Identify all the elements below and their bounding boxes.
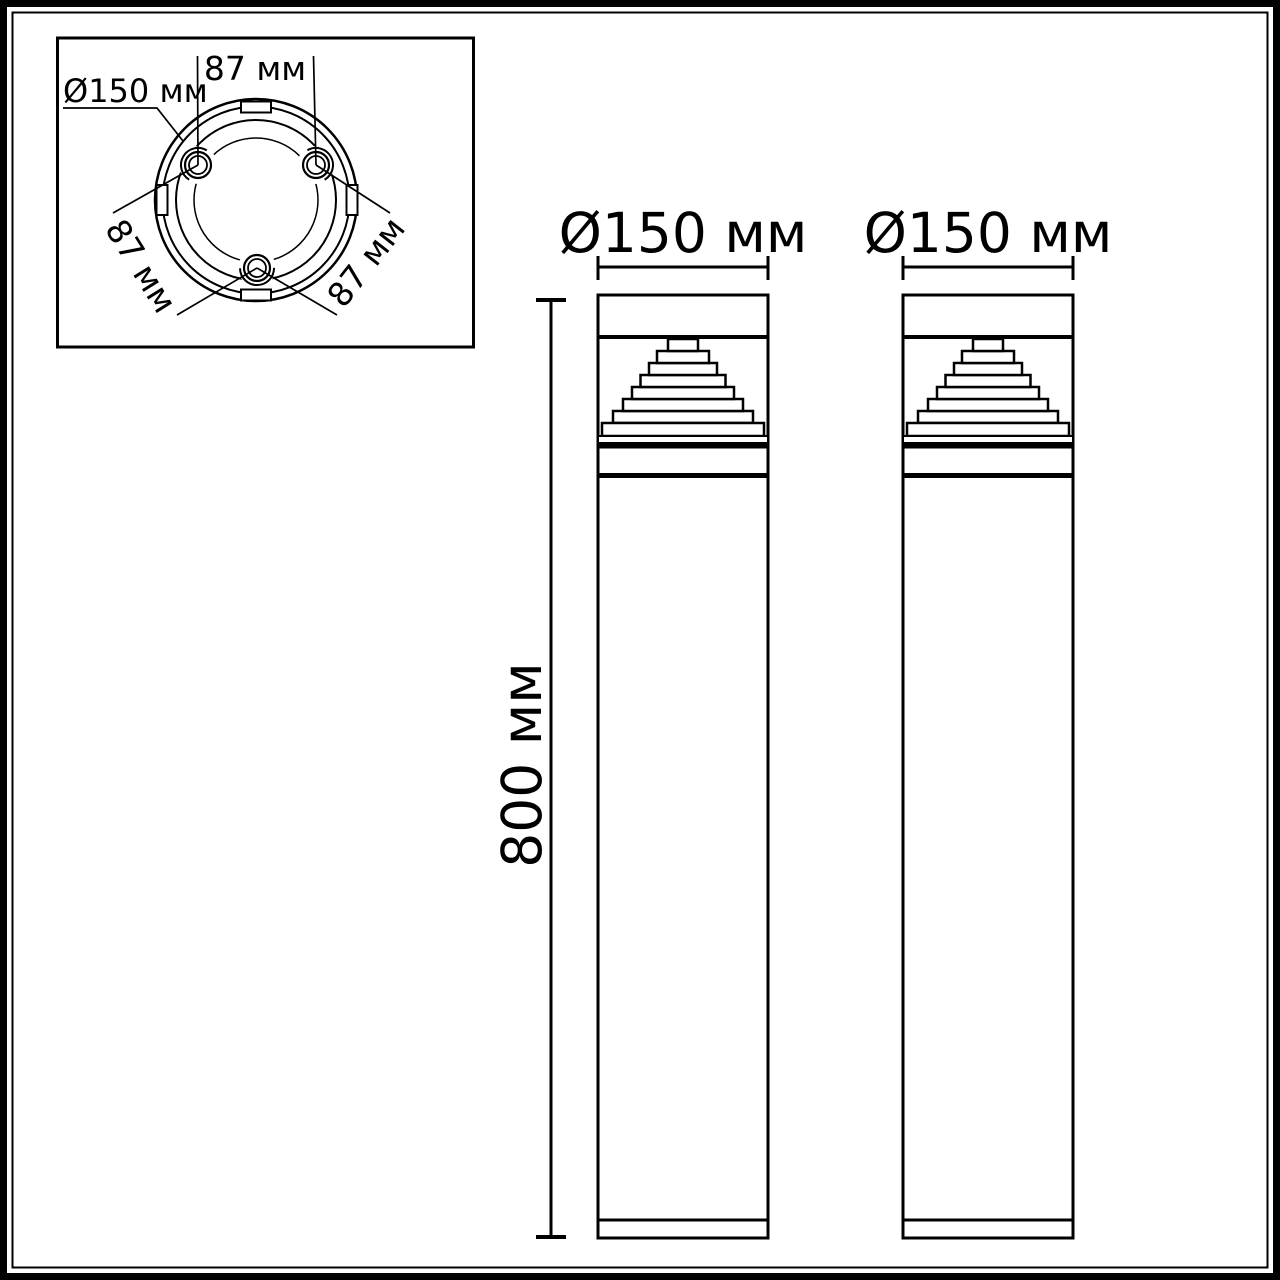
- trim-ring-band: [598, 443, 768, 449]
- reflector-step: [668, 339, 698, 351]
- reflector-step: [641, 375, 726, 387]
- height-dimension: 800 мм: [490, 300, 566, 1237]
- rim-slot-right: [347, 185, 358, 215]
- reflector-step: [918, 411, 1058, 423]
- rim-slot-left: [157, 185, 168, 215]
- rim-slot-top: [241, 102, 271, 113]
- technical-drawing: Ø150 мм 87 мм 87 мм 87 мм 800 мм Ø150 мм…: [0, 0, 1280, 1280]
- reflector-step: [623, 399, 743, 411]
- reflector-step: [632, 387, 734, 399]
- trim-ring-strip: [903, 436, 1073, 443]
- diffuser-base-strip: [907, 423, 1069, 436]
- reflector-step: [937, 387, 1039, 399]
- height-label: 800 мм: [490, 662, 554, 867]
- reflector-step: [649, 363, 717, 375]
- reflector-step: [962, 351, 1014, 363]
- bollard-elevation-right: Ø150 мм: [864, 201, 1113, 1238]
- reflector-step: [973, 339, 1003, 351]
- reflector-step: [954, 363, 1022, 375]
- diffuser-base-strip: [602, 423, 764, 436]
- diameter-label-left: Ø150 мм: [559, 201, 808, 265]
- top-view-diameter-label: Ø150 мм: [63, 72, 208, 110]
- diameter-label-right: Ø150 мм: [864, 201, 1113, 265]
- bollard-elevation-left: Ø150 мм: [559, 201, 808, 1238]
- reflector-step: [657, 351, 709, 363]
- rim-slot-bottom: [241, 290, 271, 301]
- trim-ring-band: [903, 443, 1073, 449]
- top-view-spacing-label-top: 87 мм: [204, 49, 306, 88]
- reflector-step: [613, 411, 753, 423]
- drawing-sheet: Ø150 мм 87 мм 87 мм 87 мм 800 мм Ø150 мм…: [0, 0, 1280, 1280]
- reflector-step: [928, 399, 1048, 411]
- reflector-step: [946, 375, 1031, 387]
- trim-ring-strip: [598, 436, 768, 443]
- top-view-inset: Ø150 мм 87 мм 87 мм 87 мм: [58, 38, 474, 347]
